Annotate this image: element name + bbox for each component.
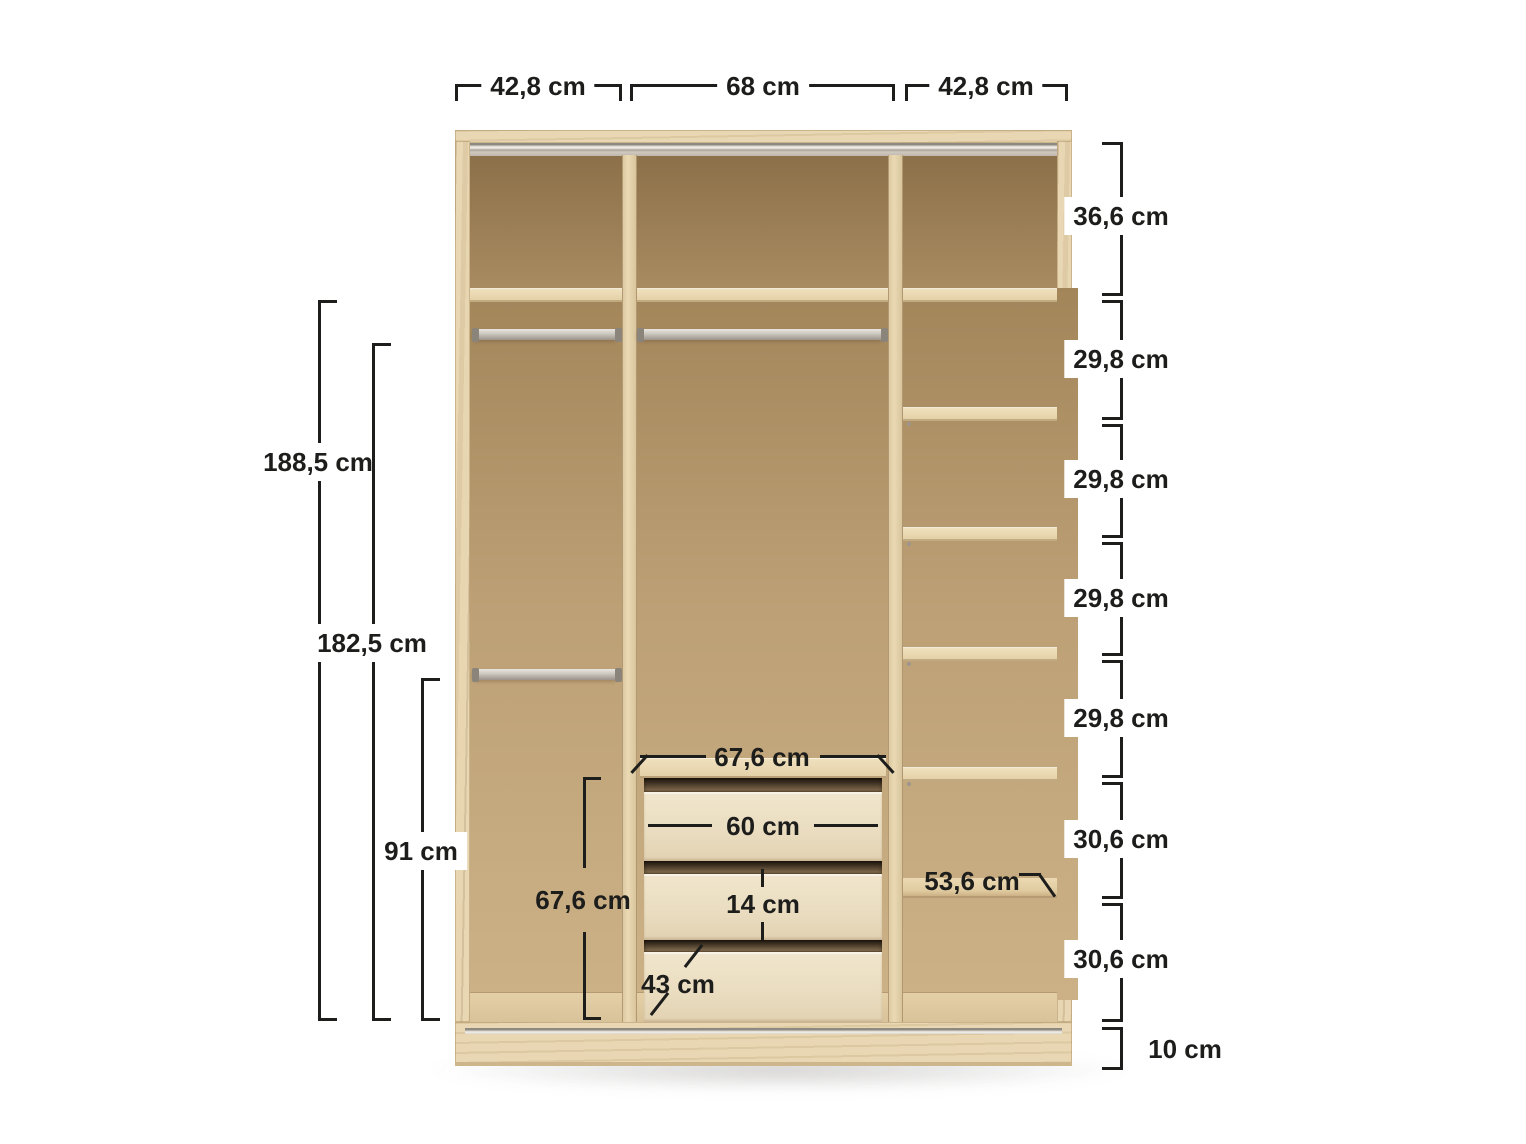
dim-tick [1102, 653, 1123, 656]
dim-tick [421, 1018, 440, 1021]
partition-right [888, 155, 903, 1022]
right-shelf-2 [903, 527, 1057, 541]
dim-left-label-1: 188,5 cm [254, 443, 382, 481]
dim-line [761, 922, 764, 940]
dim-right-label-5: 29,8 cm [1064, 699, 1177, 737]
dim-drawer-inner-height: 14 cm [726, 891, 800, 917]
dim-top-right-label: 42,8 cm [929, 67, 1042, 105]
dim-tick [1102, 417, 1123, 420]
dim-tick [1102, 1019, 1123, 1022]
dim-tick [1102, 1067, 1123, 1070]
dim-line [583, 777, 586, 868]
dim-right-label-2: 29,8 cm [1064, 340, 1177, 378]
sliding-door-top-track [465, 143, 1062, 156]
dim-right-label-1: 36,6 cm [1064, 197, 1177, 235]
dim-right-label-8: 10 cm [1148, 1036, 1222, 1062]
dim-drawer-depth: 43 cm [641, 971, 715, 997]
dim-tick [1102, 896, 1123, 899]
dim-line [892, 84, 895, 101]
sliding-door-bottom-track [465, 1028, 1062, 1034]
shelf-pin [907, 422, 911, 426]
drawer-slot-1 [644, 778, 882, 792]
dim-line [372, 343, 375, 1021]
dim-line [1120, 1027, 1123, 1070]
dim-line [814, 824, 878, 827]
dim-tick [1102, 535, 1123, 538]
dim-right-label-3: 29,8 cm [1064, 460, 1177, 498]
dim-line [1065, 84, 1068, 101]
dim-right-label-7: 30,6 cm [1064, 940, 1177, 978]
right-shelf-4 [903, 767, 1057, 781]
left-side-panel [455, 141, 470, 1022]
dim-top-left-label: 42,8 cm [481, 67, 594, 105]
dim-drawer-zone-height: 67,6 cm [535, 887, 630, 913]
dim-drawer-front-width: 60 cm [726, 813, 800, 839]
dim-tick [583, 1017, 601, 1020]
right-shelf-1 [903, 407, 1057, 421]
dim-tick [318, 1018, 337, 1021]
hanging-rail-middle [639, 329, 886, 340]
dim-line [583, 932, 586, 1020]
wardrobe-diagram: 42,8 cm 68 cm 42,8 cm 36,6 cm 29,8 cm 29… [0, 0, 1526, 1144]
dim-line [640, 755, 706, 758]
dim-drawer-top-width: 67,6 cm [714, 744, 809, 770]
dim-line [761, 869, 764, 887]
dim-tick [1102, 775, 1123, 778]
drawer-slot-3 [644, 940, 882, 952]
right-shelf-3 [903, 647, 1057, 661]
wardrobe-top-panel [455, 130, 1072, 143]
dim-tick [372, 1018, 391, 1021]
dim-shelf-width: 53,6 cm [924, 868, 1019, 894]
shelf-pin [907, 782, 911, 786]
dim-line [648, 824, 712, 827]
hanging-rail-left-lower [474, 669, 620, 680]
dim-line [619, 84, 622, 101]
dim-left-label-3: 91 cm [375, 832, 467, 870]
dim-right-label-4: 29,8 cm [1064, 579, 1177, 617]
dim-tick [1102, 293, 1123, 296]
shelf-pin [907, 662, 911, 666]
shelf-pin [907, 542, 911, 546]
dim-right-label-6: 30,6 cm [1064, 820, 1177, 858]
plinth-bottom-edge [455, 1062, 1072, 1066]
hanging-rail-left-upper [474, 329, 620, 340]
dim-top-middle-label: 68 cm [717, 67, 809, 105]
top-compartment-back [470, 156, 1057, 288]
dim-left-label-2: 182,5 cm [308, 624, 436, 662]
top-shelf [470, 288, 1057, 302]
